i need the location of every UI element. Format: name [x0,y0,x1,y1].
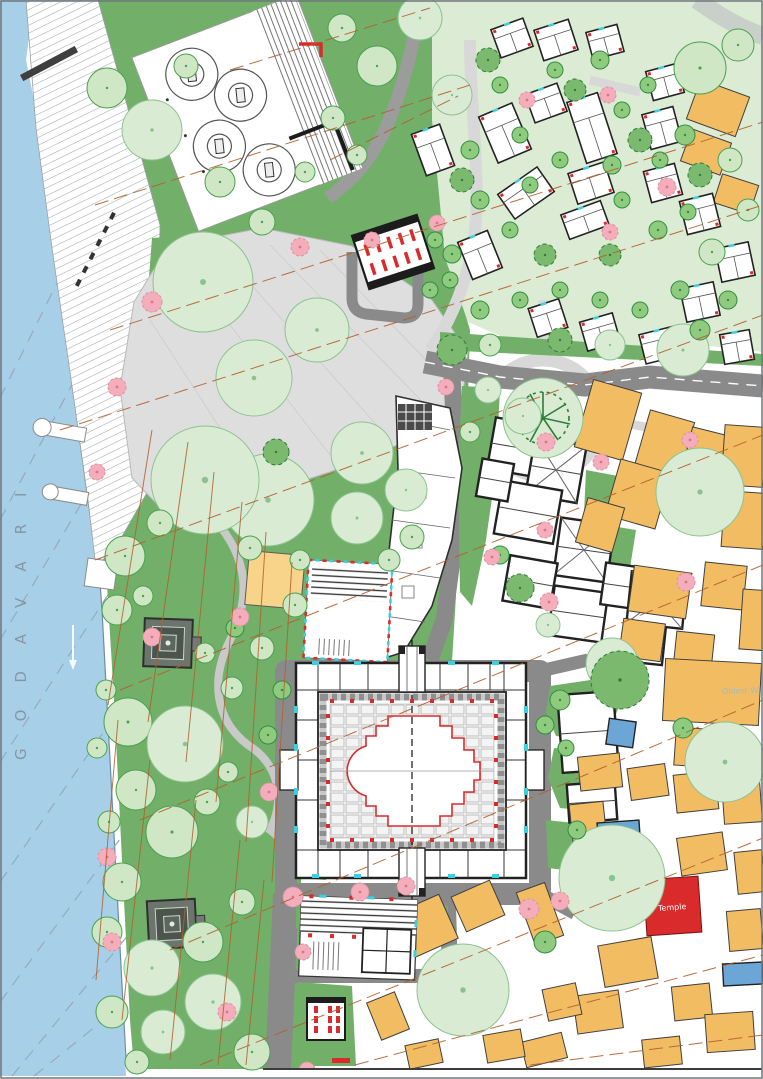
tree-trunk-dot [96,471,99,474]
tree-trunk-dot [226,1011,229,1014]
tree-trunk-dot [359,891,362,894]
tree-trunk-dot [699,329,701,331]
door-opening-mark [524,706,528,713]
heritage-building [548,585,608,642]
tree-trunk-dot [544,254,546,256]
column-dot [450,838,454,842]
tree-trunk-dot [607,94,610,97]
tree-trunk-dot [609,875,615,881]
tree-trunk-dot [211,1000,214,1003]
tree-trunk-dot [202,941,204,943]
villa-building [719,329,754,365]
tree-trunk-dot [559,339,561,341]
tree-trunk-dot [451,94,453,96]
red-marker-bar [332,1058,350,1063]
tree-trunk-dot [302,951,305,954]
tree-trunk-dot [679,289,681,291]
tree-trunk-dot [332,117,334,119]
tree-trunk-dot [150,128,154,132]
existing-building [367,992,410,1040]
tree-trunk-dot [554,69,556,71]
tree-trunk-dot [469,149,471,151]
tree-trunk-dot [111,1011,113,1013]
tree-trunk-dot [116,386,119,389]
existing-building [577,753,622,791]
tree-trunk-dot [526,99,529,102]
tree-trunk-dot [419,17,422,20]
tree-trunk-dot [576,829,578,831]
column-dot [330,699,334,703]
column-dot [350,699,354,703]
tree-trunk-dot [267,734,269,736]
tree-trunk-dot [96,747,98,749]
door-opening-mark [354,661,361,665]
column-dot [494,824,498,828]
tree-trunk-dot [405,885,408,888]
tree-trunk-dot [249,547,251,549]
tree-trunk-dot [451,349,453,351]
tree-trunk-dot [487,59,489,61]
tree-trunk-dot [135,789,137,791]
tree-trunk-dot [206,801,208,803]
column-dot [326,824,330,828]
tree-trunk-dot [429,289,431,291]
tree-trunk-dot [355,516,358,519]
pilgrim-hall-building [299,894,419,980]
tree-trunk-dot [449,279,451,281]
door-opening-mark [294,744,298,751]
tree-trunk-dot [202,477,208,483]
tree-trunk-dot [621,109,623,111]
existing-building [483,1029,525,1063]
tree-trunk-dot [251,1051,253,1053]
tree-trunk-dot [559,289,561,291]
tree-trunk-dot [509,229,511,231]
column-dot [430,699,434,703]
tree-trunk-dot [142,595,144,597]
tree-trunk-dot [545,441,548,444]
tree-trunk-dot [621,199,623,201]
tree-trunk-dot [659,159,661,161]
tree-trunk-dot [341,27,343,29]
tree-trunk-dot [434,239,436,241]
tree-trunk-dot [231,687,233,689]
tree-trunk-dot [275,451,277,453]
tree-trunk-dot [151,636,154,639]
villa-accent [749,355,752,358]
door-opening-mark [354,874,361,878]
column-dot [410,838,414,842]
existing-building [628,565,692,619]
door-opening-mark [448,874,455,878]
tree-trunk-dot [609,231,612,234]
tree-trunk-dot [304,171,306,173]
existing-building [701,562,747,610]
door-opening-mark [524,788,528,795]
tree-trunk-dot [522,415,524,417]
tree-trunk-dot [127,721,130,724]
tree-trunk-dot [200,279,206,285]
door-opening-mark [448,661,455,665]
tree-trunk-dot [565,747,567,749]
column-dot [370,699,374,703]
tree-trunk-dot [611,164,613,166]
oldest-way-label: Oldest W [722,686,759,696]
tree-trunk-dot [697,489,702,494]
tree-trunk-dot [251,821,253,823]
tree-trunk-dot [136,1061,138,1063]
door-opening-mark [294,826,298,833]
tree-trunk-dot [261,221,263,223]
tree-trunk-dot [529,184,531,186]
tree-trunk-dot [723,760,728,765]
column-dot [490,838,494,842]
tree-trunk-dot [479,309,481,311]
column-dot [326,802,330,806]
tree-trunk-dot [544,724,546,726]
event-hall [303,560,392,662]
tree-trunk-dot [548,601,551,604]
existing-building [726,909,763,952]
tree-trunk-dot [519,587,521,589]
tree-trunk-dot [268,791,271,794]
tree-trunk-dot [299,246,302,249]
column-dot [330,838,334,842]
tree-trunk-dot [116,609,118,611]
tree-trunk-dot [600,461,603,464]
tree-trunk-dot [687,211,689,213]
tree-trunk-dot [261,647,263,649]
tree-trunk-dot [639,139,641,141]
tree-trunk-dot [252,376,257,381]
tree-trunk-dot [388,559,390,561]
column-dot [350,838,354,842]
door-opening-mark [492,661,499,665]
tree-trunk-dot [547,624,549,626]
tree-trunk-dot [698,66,701,69]
tree-trunk-dot [170,830,173,833]
tree-trunk-dot [599,299,601,301]
column-dot [470,699,474,703]
north-gopuram [399,646,425,692]
door-opening-mark [312,661,319,665]
tree-trunk-dot [657,229,659,231]
site-plan-drawing: Temple [0,0,763,1079]
tree-trunk-dot [599,59,601,61]
tree-trunk-dot [405,489,408,492]
column-dot [494,758,498,762]
tree-trunk-dot [105,689,107,691]
column-dot [494,780,498,784]
tree-trunk-dot [681,348,684,351]
tree-trunk-dot [491,556,494,559]
tree-trunk-dot [499,84,501,86]
road-stub-ne [540,660,588,671]
column-dot [494,714,498,718]
small-mandapa [307,998,345,1040]
tree-trunk-dot [519,299,521,301]
tree-trunk-dot [519,134,521,136]
tree-trunk-dot [559,159,561,161]
tree-trunk-dot [234,627,236,629]
tree-trunk-dot [489,344,491,346]
door-opening-mark [312,874,319,878]
tree-trunk-dot [162,1031,165,1034]
tree-trunk-dot [159,522,161,524]
tree-trunk-dot [150,966,153,969]
existing-building [627,764,669,801]
column-dot [326,714,330,718]
tree-trunk-dot [684,134,686,136]
tree-trunk-dot [574,89,576,91]
column-dot [410,699,414,703]
tree-trunk-dot [639,309,641,311]
south-road-west [278,894,286,1069]
river-name-label: GODAVARI [12,466,30,760]
tree-trunk-dot [445,386,448,389]
tree-trunk-dot [239,616,242,619]
column-dot [490,699,494,703]
tree-trunk-dot [183,742,188,747]
tree-trunk-dot [436,222,439,225]
tree-trunk-dot [227,771,229,773]
tree-trunk-dot [411,536,413,538]
column-dot [450,699,454,703]
existing-building [520,1032,567,1067]
tree-trunk-dot [528,908,531,911]
tree-trunk-dot [729,159,731,161]
door-opening-mark [492,874,499,878]
door-opening-mark [294,706,298,713]
master-plan-canvas: Temple [0,0,763,1079]
existing-building [542,983,582,1021]
tree-trunk-dot [737,44,739,46]
column-dot [470,838,474,842]
tree-trunk-dot [682,727,684,729]
tree-trunk-dot [281,689,283,691]
villa-accent [750,271,754,275]
heritage-building [476,459,514,502]
tree-trunk-dot [685,581,688,584]
tree-trunk-dot [151,301,154,304]
existing-building [405,1039,443,1070]
column-dot [326,758,330,762]
tree-trunk-dot [609,254,611,256]
tree-trunk-dot [559,699,561,701]
villa-accent [715,311,719,315]
door-opening-mark [524,826,528,833]
tree-trunk-dot [666,186,669,189]
existing-building [705,1011,756,1052]
tree-trunk-dot [376,65,378,67]
tree-trunk-dot [609,344,611,346]
tree-trunk-dot [121,881,123,883]
east-porch [526,750,544,790]
tree-trunk-dot [544,941,546,943]
tree-trunk-dot [699,174,701,176]
water-tank-building [722,962,763,986]
large-canopy-tree-icon [398,0,442,40]
tree-trunk-dot [204,652,206,654]
tree-trunk-dot [647,84,649,86]
tree-trunk-dot [299,559,301,561]
tree-trunk-dot [487,389,489,391]
tree-trunk-dot [315,328,319,332]
existing-building [734,850,763,895]
column-dot [326,736,330,740]
tree-trunk-dot [479,199,481,201]
tree-trunk-dot [265,497,271,503]
tree-trunk-dot [461,179,463,181]
tree-trunk-dot [111,941,114,944]
existing-building [642,1036,683,1068]
water-tank-building [606,718,636,748]
tree-trunk-dot [469,431,471,433]
column-dot [494,736,498,740]
column-dot [390,838,394,842]
tree-trunk-dot [371,239,374,242]
tree-trunk-dot [106,87,108,89]
tree-trunk-dot [360,451,364,455]
column-dot [390,699,394,703]
tree-trunk-dot [559,900,562,903]
door-opening-mark [524,744,528,751]
main-temple-complex [280,640,544,902]
tree-trunk-dot [185,65,187,67]
door-opening-mark [294,788,298,795]
tree-trunk-dot [241,901,243,903]
existing-building [598,937,658,988]
tree-trunk-dot [356,154,358,156]
column-dot [494,802,498,806]
tree-trunk-dot [294,604,296,606]
tree-trunk-dot [460,987,466,993]
tree-trunk-dot [124,555,126,557]
column-dot [326,780,330,784]
tree-trunk-dot [544,529,547,532]
tree-trunk-dot [618,678,621,681]
tree-trunk-dot [219,181,221,183]
column-dot [370,838,374,842]
existing-building [739,589,763,651]
villa-accent [721,336,724,339]
hall-stairs [316,638,353,656]
tree-trunk-dot [711,251,713,253]
tree-trunk-dot [106,931,108,933]
hall-roof-ridges [311,564,389,602]
hall-stairs [312,941,343,970]
tree-trunk-dot [727,299,729,301]
tree-trunk-dot [451,253,453,255]
tree-trunk-dot [689,439,692,442]
